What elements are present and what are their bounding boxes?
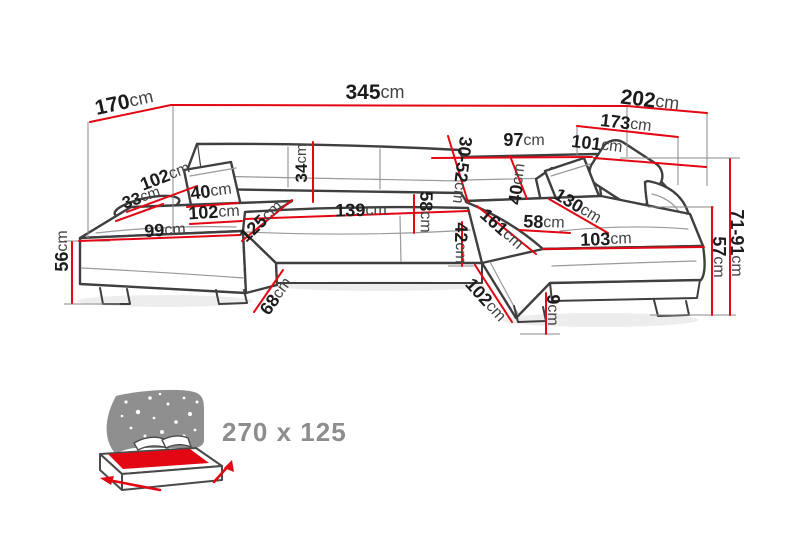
dimension-label-seat-height-right: 57cm <box>709 236 729 277</box>
dimension-label-total-width-back: 345cm <box>345 81 404 104</box>
dimension-label-leg-height: 9cm <box>543 294 563 325</box>
dimension-label-side-height-left: 56cm <box>52 230 72 271</box>
dimension-label-seat-front-height: 42cm <box>451 222 472 264</box>
dimension-label-inner-right-length: 101cm <box>570 131 623 157</box>
dimension-label-back-segment-right: 97cm <box>503 130 544 150</box>
dimension-label-depth-right-top: 202cm <box>619 85 680 115</box>
bed-icon <box>100 390 234 490</box>
sleeping-size-label: 270 x 125 <box>222 417 347 447</box>
dimension-label-back-height-range: 71-91cm <box>727 209 747 276</box>
dimension-label-seat-depth-center: 58cm <box>416 191 437 233</box>
dimension-label-seat-width-right: 103cm <box>580 228 632 250</box>
dimension-label-right-section-length: 173cm <box>599 110 652 136</box>
diagram-canvas: 170cm345cm202cm173cm97cm101cm102cm33cm40… <box>0 0 800 533</box>
dim-line-345 <box>171 105 627 106</box>
dimension-label-seat-width-center: 139cm <box>335 200 387 221</box>
sofa-dimension-diagram-page: 170cm345cm202cm173cm97cm101cm102cm33cm40… <box>0 0 800 533</box>
dimension-label-backrest-height: 34cm <box>292 144 311 183</box>
dimension-label-seat-depth-right: 58cm <box>523 211 565 232</box>
